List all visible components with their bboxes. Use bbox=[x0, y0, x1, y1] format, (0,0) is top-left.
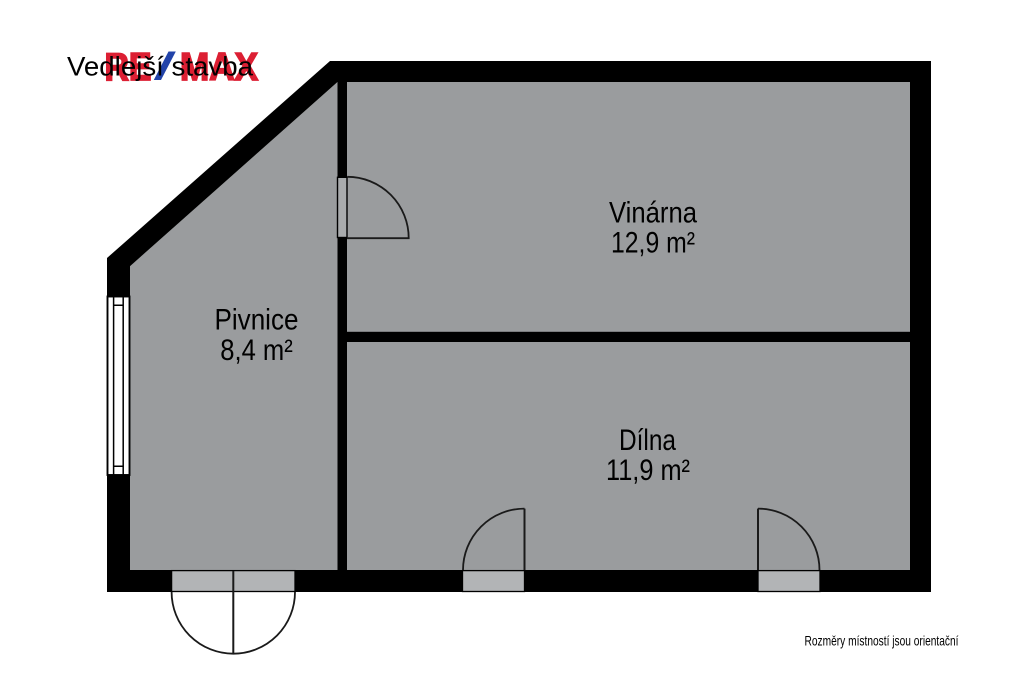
svg-text:Dílna: Dílna bbox=[619, 424, 676, 457]
svg-text:8,4 m²: 8,4 m² bbox=[220, 334, 293, 367]
svg-text:Vinárna: Vinárna bbox=[609, 196, 697, 229]
svg-text:Vedlejší stavba: Vedlejší stavba bbox=[67, 52, 254, 82]
svg-text:Pivnice: Pivnice bbox=[215, 304, 299, 337]
svg-text:Rozměry místností jsou orienta: Rozměry místností jsou orientační bbox=[805, 633, 959, 649]
svg-text:12,9 m²: 12,9 m² bbox=[611, 227, 695, 260]
svg-text:11,9 m²: 11,9 m² bbox=[606, 454, 690, 487]
